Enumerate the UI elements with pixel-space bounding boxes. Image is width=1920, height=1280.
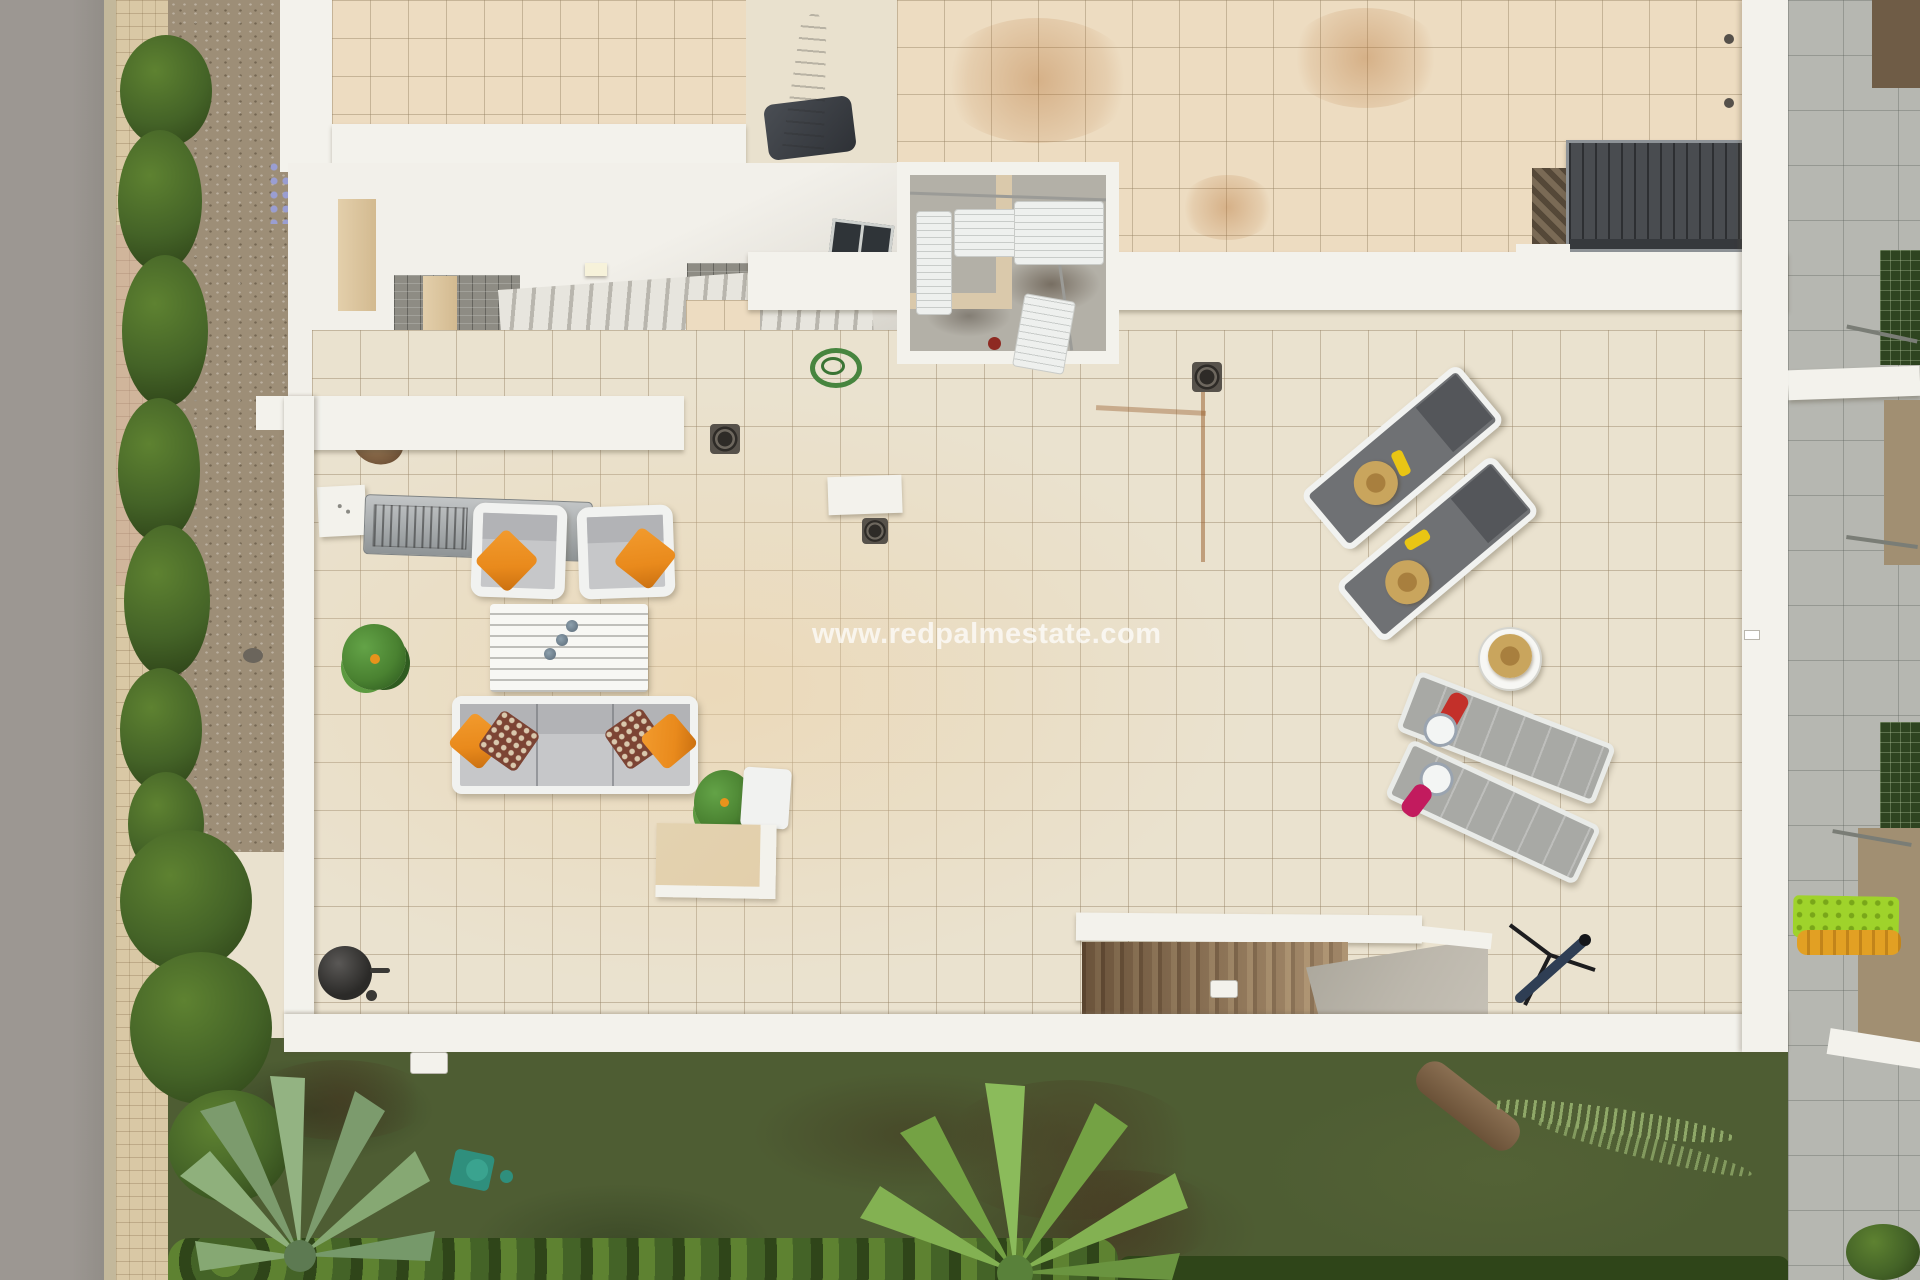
terrace-bottom-parapet <box>284 1014 1788 1052</box>
stair-light <box>1210 980 1238 998</box>
ac-unit <box>1012 293 1076 375</box>
stone-pillar <box>423 276 457 338</box>
hose-ring <box>821 357 845 375</box>
aerial-photo: www.redpalmestate.com <box>0 0 1920 1280</box>
ac-unit <box>916 211 952 315</box>
hedge <box>118 398 200 542</box>
lounge-armchair <box>470 502 567 599</box>
stone-pillar <box>338 199 376 311</box>
teal-disc <box>464 1157 490 1183</box>
fan-palm-left <box>140 1056 450 1280</box>
hedge <box>122 255 208 407</box>
rust-stain <box>1288 8 1443 108</box>
slatted-coffee-table <box>490 604 648 692</box>
teal-dot <box>500 1170 513 1183</box>
telescope <box>1480 900 1630 1020</box>
hedge <box>118 130 202 272</box>
cup <box>544 648 556 660</box>
cup <box>566 620 578 632</box>
parapet-bump <box>1516 244 1570 308</box>
grill-grate <box>372 504 467 549</box>
neighbor-hedge <box>1880 250 1920 365</box>
pergola-wood-deck <box>1532 168 1566 252</box>
coiled-garden-hose <box>810 348 862 388</box>
neighbor-ledge <box>1788 366 1920 401</box>
straw-hat <box>1376 551 1438 613</box>
ceiling-light <box>585 263 607 276</box>
bbq-handle <box>370 968 390 973</box>
roof-drain-dot <box>1724 34 1734 44</box>
white-planter-box <box>740 766 792 829</box>
armchair-backrest <box>482 513 557 542</box>
neighbor-topsoil <box>1872 0 1920 88</box>
rust-streak <box>1201 392 1205 562</box>
sunscreen-bottle <box>1403 528 1432 551</box>
floor-drain <box>1192 362 1222 392</box>
straw-hat <box>1488 634 1532 678</box>
cup <box>556 634 568 646</box>
neighbor-corner-hedge <box>1846 1224 1920 1280</box>
parapet-latch <box>1744 630 1760 640</box>
kitchen-vent-box <box>317 485 368 537</box>
red-valve <box>988 337 1001 350</box>
rust-stain <box>940 18 1135 143</box>
parapet-corner-nub <box>256 396 286 430</box>
plant-flower <box>370 654 380 664</box>
floor-drain <box>862 518 888 544</box>
technical-enclosure <box>897 162 1119 364</box>
terrace-left-top-parapet <box>284 396 684 450</box>
bottom-hedge-dark <box>1118 1256 1790 1280</box>
lounge-armchair <box>576 504 675 599</box>
watermark: www.redpalmestate.com <box>812 618 1161 651</box>
terrace-left-parapet <box>284 396 314 1052</box>
neighbor-terrace <box>1788 0 1920 1280</box>
street-curb <box>104 0 116 1280</box>
street-asphalt <box>0 0 116 1280</box>
terrace-ledge <box>827 475 902 516</box>
plant-flower <box>720 798 729 807</box>
rock <box>243 648 263 663</box>
vent-dot <box>346 510 350 514</box>
vent-dot <box>338 504 342 508</box>
orange-lilo <box>1797 930 1901 955</box>
cushion-divider <box>536 704 538 786</box>
fan-palm-center <box>820 1068 1200 1280</box>
hedge-bright <box>120 830 252 972</box>
stairwell-steps-shading <box>1082 942 1348 1016</box>
tl-parapet-vertical <box>280 0 332 172</box>
ac-unit <box>954 209 1018 257</box>
roof-drain-dot <box>1724 98 1734 108</box>
potted-plant <box>342 624 406 690</box>
neighbor-hedge <box>1880 722 1920 834</box>
rust-stain <box>1180 175 1275 240</box>
ac-unit <box>1014 201 1104 265</box>
bbq-wheel <box>366 990 377 1001</box>
kettle-barbecue <box>318 942 396 1006</box>
terrace-right-parapet <box>1742 0 1788 1052</box>
concrete-bench <box>655 823 776 899</box>
hedge <box>124 525 210 677</box>
top-left-roof-terrace <box>332 0 746 124</box>
three-seat-sofa <box>452 696 698 794</box>
bbq-kettle <box>318 946 372 1000</box>
floor-drain <box>710 424 740 454</box>
